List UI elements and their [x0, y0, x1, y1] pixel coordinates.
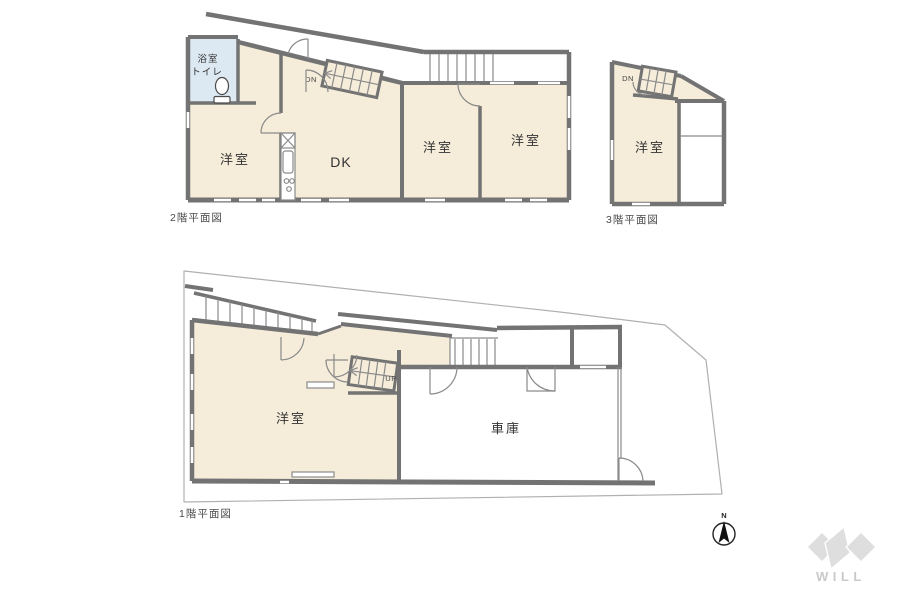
- floor1-caption: 1階平面図: [179, 508, 232, 520]
- floor1-exterior-stairs-mid: [450, 338, 498, 366]
- room-label-dk: DK: [330, 154, 351, 170]
- floor1-stair-up-label: UP: [385, 374, 396, 383]
- floorplan-canvas: DN 浴室 トイレ 洋室 DK 洋室 洋室 2階平面図: [0, 0, 920, 613]
- floor1-room-fill: [192, 322, 450, 481]
- floor2-caption: 2階平面図: [170, 212, 223, 224]
- floor2-room-fills: [188, 37, 569, 200]
- will-logo-mark-icon: [807, 527, 876, 569]
- north-compass: N: [713, 511, 735, 545]
- north-label: N: [721, 511, 726, 520]
- room-label-west-left-2f: 洋室: [220, 152, 250, 167]
- floorplan-sheet: DN 浴室 トイレ 洋室 DK 洋室 洋室 2階平面図: [0, 0, 920, 613]
- floor3-plan: DN 洋室 3階平面図: [606, 62, 724, 226]
- room-label-garage: 車庫: [491, 421, 521, 436]
- room-label-bath-line2: トイレ: [191, 67, 223, 78]
- room-label-west-1f: 洋室: [276, 411, 306, 426]
- floor3-stair-dn-label: DN: [622, 74, 634, 83]
- floor1-plan: UP 洋室 車庫 1階平面図: [179, 271, 722, 520]
- floor3-caption: 3階平面図: [606, 214, 659, 226]
- floor2-stair-dn-label: DN: [305, 75, 317, 84]
- room-label-west-right-2f: 洋室: [511, 133, 541, 148]
- room-label-bath-line1: 浴室: [197, 53, 218, 65]
- floor2-plan: DN 浴室 トイレ 洋室 DK 洋室 洋室 2階平面図: [170, 14, 569, 224]
- floor2-exterior-stairs: [430, 54, 493, 81]
- toilet-icon: [214, 78, 230, 104]
- kitchen-counter: [281, 133, 295, 200]
- will-logo: WILL: [807, 527, 876, 584]
- room-label-west-mid-2f: 洋室: [423, 140, 453, 155]
- room-label-west-3f: 洋室: [635, 140, 665, 155]
- kitchen-sink-icon: [283, 151, 293, 173]
- will-logo-text: WILL: [816, 569, 866, 584]
- floor3-stair-dn: [638, 66, 676, 97]
